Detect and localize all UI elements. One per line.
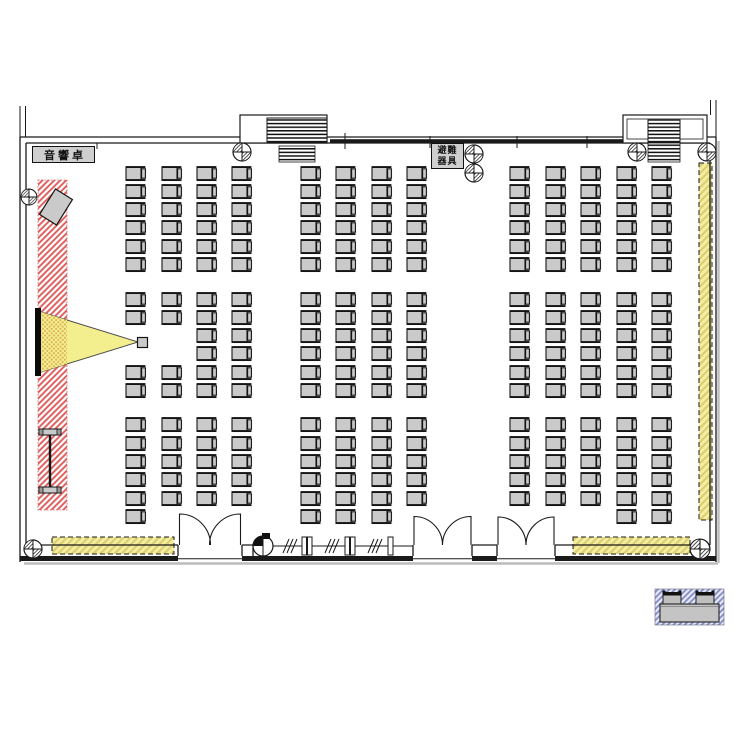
projector-beam-texture bbox=[41, 312, 67, 372]
chair bbox=[617, 328, 638, 343]
chair bbox=[546, 257, 567, 272]
chair bbox=[652, 472, 673, 487]
chair bbox=[652, 509, 673, 524]
chair bbox=[372, 491, 393, 506]
chair bbox=[301, 328, 322, 343]
chair bbox=[301, 292, 322, 307]
doors bbox=[180, 514, 555, 545]
chair bbox=[372, 383, 393, 398]
double-door-1 bbox=[180, 514, 241, 545]
chair bbox=[301, 220, 322, 235]
chair bbox=[546, 292, 567, 307]
chair bbox=[407, 491, 428, 506]
chair bbox=[581, 292, 602, 307]
chair bbox=[162, 257, 183, 272]
chair bbox=[336, 383, 357, 398]
chair bbox=[197, 292, 218, 307]
chair bbox=[336, 220, 357, 235]
chair bbox=[197, 310, 218, 325]
chair bbox=[232, 417, 253, 432]
chair bbox=[617, 472, 638, 487]
chair bbox=[197, 220, 218, 235]
chair bbox=[581, 184, 602, 199]
chair bbox=[652, 239, 673, 254]
chair bbox=[232, 257, 253, 272]
chair bbox=[510, 417, 531, 432]
chair bbox=[652, 346, 673, 361]
chair bbox=[372, 310, 393, 325]
chair bbox=[336, 436, 357, 451]
chair bbox=[617, 202, 638, 217]
chair bbox=[232, 328, 253, 343]
chair bbox=[126, 292, 147, 307]
chair bbox=[232, 202, 253, 217]
chair bbox=[617, 239, 638, 254]
hall-floor-plan: 音響卓 避難 器具 bbox=[0, 0, 750, 750]
chair bbox=[652, 257, 673, 272]
chair bbox=[197, 417, 218, 432]
chair bbox=[581, 166, 602, 181]
chair bbox=[197, 328, 218, 343]
chair bbox=[652, 328, 673, 343]
chair bbox=[546, 239, 567, 254]
column-circle bbox=[465, 164, 483, 182]
chair bbox=[617, 509, 638, 524]
evacuation-equipment-label: 避難 器具 bbox=[431, 143, 464, 169]
chair bbox=[197, 202, 218, 217]
chair bbox=[581, 239, 602, 254]
chair bbox=[407, 202, 428, 217]
chair bbox=[652, 417, 673, 432]
evac-label-line2: 器具 bbox=[437, 156, 457, 167]
chair bbox=[372, 220, 393, 235]
chair bbox=[510, 239, 531, 254]
chair bbox=[617, 436, 638, 451]
chair bbox=[407, 310, 428, 325]
sound-desk-label-text: 音響卓 bbox=[44, 147, 86, 163]
chair bbox=[372, 328, 393, 343]
chair bbox=[510, 257, 531, 272]
chair bbox=[546, 436, 567, 451]
chair bbox=[372, 257, 393, 272]
chair bbox=[407, 184, 428, 199]
chair bbox=[301, 383, 322, 398]
chair bbox=[126, 417, 147, 432]
chair bbox=[301, 346, 322, 361]
chair bbox=[336, 166, 357, 181]
chair bbox=[546, 202, 567, 217]
chair bbox=[652, 220, 673, 235]
chair bbox=[581, 436, 602, 451]
chair bbox=[126, 491, 147, 506]
chair bbox=[162, 310, 183, 325]
chair bbox=[617, 417, 638, 432]
chair bbox=[126, 184, 147, 199]
chair bbox=[652, 454, 673, 469]
chair bbox=[652, 491, 673, 506]
chair bbox=[336, 292, 357, 307]
sound-desk-label: 音響卓 bbox=[32, 146, 95, 163]
chair bbox=[301, 257, 322, 272]
chair bbox=[197, 257, 218, 272]
chair bbox=[162, 184, 183, 199]
chair bbox=[407, 346, 428, 361]
chair bbox=[581, 491, 602, 506]
chair bbox=[232, 491, 253, 506]
chair bbox=[510, 365, 531, 380]
chair bbox=[197, 365, 218, 380]
chair bbox=[162, 436, 183, 451]
chair bbox=[232, 472, 253, 487]
chair bbox=[197, 239, 218, 254]
chair bbox=[232, 454, 253, 469]
partition-post-circle bbox=[253, 533, 273, 556]
column-circle bbox=[465, 145, 483, 163]
chair bbox=[510, 346, 531, 361]
chair bbox=[301, 436, 322, 451]
chair bbox=[162, 491, 183, 506]
chair bbox=[336, 365, 357, 380]
chair bbox=[336, 202, 357, 217]
chair bbox=[652, 292, 673, 307]
projector bbox=[138, 338, 148, 348]
chair bbox=[510, 292, 531, 307]
chair bbox=[617, 184, 638, 199]
chair bbox=[546, 454, 567, 469]
chair bbox=[301, 454, 322, 469]
double-door-3 bbox=[498, 517, 554, 545]
chair bbox=[581, 257, 602, 272]
chairs bbox=[126, 166, 673, 524]
chair bbox=[407, 365, 428, 380]
chair bbox=[407, 257, 428, 272]
chair bbox=[232, 365, 253, 380]
chair bbox=[162, 202, 183, 217]
chair bbox=[407, 472, 428, 487]
chair bbox=[162, 166, 183, 181]
chair bbox=[652, 383, 673, 398]
chair bbox=[197, 346, 218, 361]
chair bbox=[617, 220, 638, 235]
chair bbox=[372, 454, 393, 469]
chair bbox=[232, 184, 253, 199]
chair bbox=[336, 417, 357, 432]
chair bbox=[617, 454, 638, 469]
chair bbox=[617, 292, 638, 307]
chair bbox=[126, 310, 147, 325]
chair bbox=[617, 257, 638, 272]
chair bbox=[407, 383, 428, 398]
chair bbox=[197, 184, 218, 199]
chair bbox=[546, 491, 567, 506]
chair bbox=[407, 454, 428, 469]
chair bbox=[510, 220, 531, 235]
chair bbox=[126, 202, 147, 217]
chair bbox=[581, 365, 602, 380]
chair bbox=[510, 328, 531, 343]
chair bbox=[510, 184, 531, 199]
chair bbox=[617, 310, 638, 325]
chair bbox=[581, 346, 602, 361]
outside-table-unit bbox=[655, 589, 724, 625]
chair bbox=[581, 202, 602, 217]
chair bbox=[546, 346, 567, 361]
column-circle bbox=[690, 539, 710, 559]
chair bbox=[301, 365, 322, 380]
chair bbox=[232, 310, 253, 325]
chair bbox=[581, 220, 602, 235]
chair bbox=[126, 472, 147, 487]
double-door-2 bbox=[414, 517, 471, 546]
chair bbox=[126, 509, 147, 524]
column-circle bbox=[628, 143, 646, 161]
chair bbox=[407, 166, 428, 181]
chair bbox=[336, 491, 357, 506]
chair bbox=[301, 184, 322, 199]
chair bbox=[617, 346, 638, 361]
chair bbox=[372, 509, 393, 524]
chair bbox=[372, 292, 393, 307]
chair bbox=[652, 202, 673, 217]
chair bbox=[372, 202, 393, 217]
chair bbox=[162, 454, 183, 469]
chair bbox=[652, 365, 673, 380]
chair bbox=[232, 220, 253, 235]
chair bbox=[372, 436, 393, 451]
chair bbox=[336, 472, 357, 487]
chair bbox=[372, 417, 393, 432]
chair bbox=[126, 239, 147, 254]
chair bbox=[372, 365, 393, 380]
chair bbox=[407, 417, 428, 432]
projection-screen bbox=[35, 308, 41, 376]
chair bbox=[126, 220, 147, 235]
chair bbox=[510, 310, 531, 325]
chair bbox=[510, 383, 531, 398]
chair bbox=[126, 436, 147, 451]
chair bbox=[336, 454, 357, 469]
chair bbox=[546, 310, 567, 325]
chair bbox=[336, 184, 357, 199]
chair bbox=[372, 166, 393, 181]
chair bbox=[652, 310, 673, 325]
chair bbox=[232, 436, 253, 451]
column-circles bbox=[21, 143, 716, 559]
chair bbox=[546, 166, 567, 181]
chair bbox=[617, 365, 638, 380]
chair bbox=[407, 292, 428, 307]
chair bbox=[581, 417, 602, 432]
chair bbox=[546, 417, 567, 432]
chair bbox=[407, 328, 428, 343]
chair bbox=[197, 454, 218, 469]
chair bbox=[301, 417, 322, 432]
floor-plan-drawing bbox=[0, 0, 750, 750]
column-circle bbox=[21, 189, 37, 205]
chair bbox=[126, 257, 147, 272]
chair bbox=[581, 472, 602, 487]
chair bbox=[162, 472, 183, 487]
chair bbox=[546, 184, 567, 199]
chair bbox=[546, 328, 567, 343]
chair bbox=[336, 239, 357, 254]
chair bbox=[301, 239, 322, 254]
chair bbox=[232, 292, 253, 307]
movable-partition bbox=[253, 533, 413, 556]
chair bbox=[232, 346, 253, 361]
chair bbox=[652, 436, 673, 451]
chair bbox=[510, 454, 531, 469]
chair bbox=[197, 436, 218, 451]
chair bbox=[162, 383, 183, 398]
chair bbox=[510, 436, 531, 451]
chair bbox=[301, 472, 322, 487]
chair bbox=[197, 166, 218, 181]
louver-left bbox=[240, 115, 327, 162]
chair bbox=[510, 202, 531, 217]
chair bbox=[126, 365, 147, 380]
chair bbox=[407, 436, 428, 451]
column-circle bbox=[24, 540, 42, 558]
chair bbox=[162, 417, 183, 432]
chair bbox=[546, 472, 567, 487]
chair bbox=[617, 491, 638, 506]
chair bbox=[336, 509, 357, 524]
chair bbox=[510, 491, 531, 506]
chair bbox=[162, 239, 183, 254]
chair bbox=[197, 491, 218, 506]
chair bbox=[581, 454, 602, 469]
chair bbox=[510, 166, 531, 181]
chair bbox=[162, 292, 183, 307]
walls bbox=[20, 100, 716, 562]
chair bbox=[336, 310, 357, 325]
chair bbox=[372, 472, 393, 487]
chair bbox=[162, 365, 183, 380]
evac-label-line1: 避難 bbox=[437, 145, 457, 156]
chair bbox=[126, 383, 147, 398]
chair bbox=[546, 365, 567, 380]
chair bbox=[336, 328, 357, 343]
chair bbox=[407, 220, 428, 235]
column-circle bbox=[698, 143, 716, 161]
chair bbox=[510, 472, 531, 487]
chair bbox=[652, 166, 673, 181]
chair bbox=[301, 491, 322, 506]
chair bbox=[652, 184, 673, 199]
chair bbox=[372, 346, 393, 361]
chair bbox=[581, 383, 602, 398]
chair bbox=[546, 220, 567, 235]
chair bbox=[336, 257, 357, 272]
chair bbox=[301, 310, 322, 325]
chair bbox=[232, 166, 253, 181]
chair bbox=[162, 220, 183, 235]
chair bbox=[126, 166, 147, 181]
chair bbox=[232, 239, 253, 254]
chair bbox=[232, 383, 253, 398]
chair bbox=[301, 202, 322, 217]
chair bbox=[126, 454, 147, 469]
chair bbox=[581, 328, 602, 343]
chair bbox=[617, 383, 638, 398]
chair bbox=[407, 239, 428, 254]
chair bbox=[301, 166, 322, 181]
chair bbox=[301, 509, 322, 524]
column-circle bbox=[233, 143, 251, 161]
chair bbox=[372, 184, 393, 199]
chair bbox=[617, 166, 638, 181]
chair bbox=[336, 346, 357, 361]
chair bbox=[197, 383, 218, 398]
chair bbox=[581, 310, 602, 325]
chair bbox=[372, 239, 393, 254]
chair bbox=[546, 383, 567, 398]
chair bbox=[197, 472, 218, 487]
